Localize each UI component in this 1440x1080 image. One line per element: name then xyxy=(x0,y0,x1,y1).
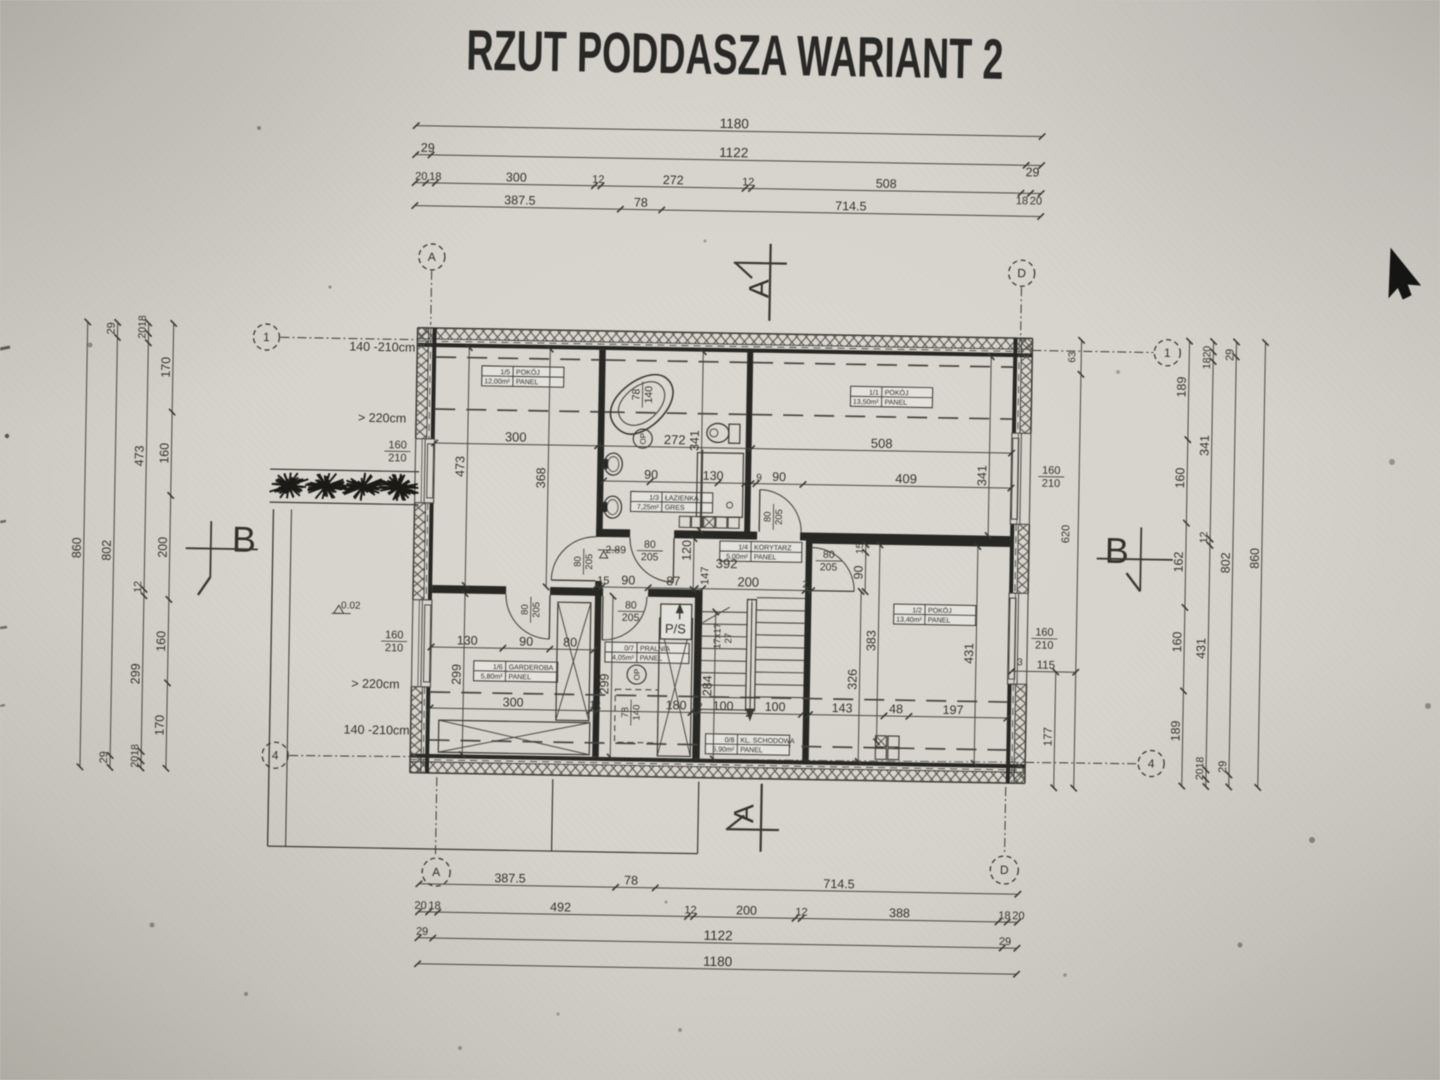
svg-text:1122: 1122 xyxy=(703,928,732,944)
svg-text:78: 78 xyxy=(620,707,631,718)
svg-text:387.5: 387.5 xyxy=(494,871,526,886)
svg-text:431: 431 xyxy=(962,643,976,664)
svg-text:160: 160 xyxy=(1170,631,1184,652)
svg-text:12: 12 xyxy=(1198,531,1210,543)
svg-text:1/4: 1/4 xyxy=(738,544,748,551)
svg-text:1/6: 1/6 xyxy=(493,664,503,671)
svg-text:130: 130 xyxy=(703,469,724,483)
svg-text:29: 29 xyxy=(416,926,428,938)
svg-text:18: 18 xyxy=(1016,195,1028,207)
svg-text:200: 200 xyxy=(737,574,759,589)
svg-text:78: 78 xyxy=(624,873,638,887)
svg-text:714.5: 714.5 xyxy=(835,199,867,214)
svg-text:13,50m²: 13,50m² xyxy=(853,399,879,406)
svg-text:272: 272 xyxy=(663,173,684,187)
svg-text:20: 20 xyxy=(414,900,426,912)
svg-text:80: 80 xyxy=(644,539,656,551)
svg-text:180: 180 xyxy=(666,698,687,712)
svg-text:802: 802 xyxy=(1218,552,1232,573)
svg-text:189: 189 xyxy=(1175,376,1189,397)
svg-text:9: 9 xyxy=(756,473,762,484)
svg-text:80: 80 xyxy=(625,599,637,611)
svg-text:80: 80 xyxy=(762,511,773,522)
svg-text:A: A xyxy=(728,804,759,824)
svg-text:299: 299 xyxy=(128,663,142,684)
svg-text:1820: 1820 xyxy=(1201,346,1213,370)
svg-text:1/1: 1/1 xyxy=(869,390,879,397)
svg-text:100: 100 xyxy=(713,699,734,713)
svg-text:78: 78 xyxy=(630,388,642,400)
svg-text:4,05m²: 4,05m² xyxy=(612,655,635,662)
svg-text:160: 160 xyxy=(157,443,171,464)
svg-text:205: 205 xyxy=(820,561,838,573)
svg-text:2018: 2018 xyxy=(1194,756,1206,780)
svg-text:B: B xyxy=(232,518,257,559)
svg-text:140 -210cm: 140 -210cm xyxy=(349,340,415,355)
svg-text:299: 299 xyxy=(449,664,463,685)
svg-text:1180: 1180 xyxy=(703,954,732,970)
svg-text:210: 210 xyxy=(388,452,407,464)
svg-text:0/8: 0/8 xyxy=(725,737,735,744)
svg-text:RZUT PODDASZA WARIANT 2: RZUT PODDASZA WARIANT 2 xyxy=(466,19,1004,92)
svg-text:12: 12 xyxy=(132,581,144,593)
svg-text:29: 29 xyxy=(98,751,110,763)
svg-text:OP: OP xyxy=(633,669,642,681)
svg-text:508: 508 xyxy=(876,177,897,191)
svg-text:PANEL: PANEL xyxy=(740,747,763,754)
svg-text:90: 90 xyxy=(772,470,786,484)
svg-text:7,25m²: 7,25m² xyxy=(637,504,660,511)
svg-text:12: 12 xyxy=(691,702,703,713)
svg-text:160: 160 xyxy=(388,439,407,451)
svg-text:210: 210 xyxy=(1035,640,1054,652)
svg-text:210: 210 xyxy=(385,642,404,654)
svg-text:387.5: 387.5 xyxy=(504,193,536,208)
svg-text:15: 15 xyxy=(597,575,609,587)
svg-text:140: 140 xyxy=(631,705,642,721)
svg-text:29: 29 xyxy=(999,936,1011,948)
svg-text:29: 29 xyxy=(1217,761,1229,773)
svg-text:189: 189 xyxy=(1169,720,1183,741)
svg-text:12: 12 xyxy=(795,906,807,918)
svg-text:PANEL: PANEL xyxy=(885,399,908,406)
svg-text:29: 29 xyxy=(1025,165,1039,179)
svg-text:409: 409 xyxy=(895,471,917,486)
svg-text:18: 18 xyxy=(428,900,440,912)
svg-text:OP: OP xyxy=(639,433,648,445)
svg-text:GRES: GRES xyxy=(665,505,685,512)
svg-text:860: 860 xyxy=(1248,548,1262,569)
svg-text:205: 205 xyxy=(641,551,659,563)
svg-text:12: 12 xyxy=(589,700,601,711)
svg-text:5,90m²: 5,90m² xyxy=(712,746,735,753)
svg-text:48: 48 xyxy=(889,702,903,716)
svg-text:383: 383 xyxy=(864,630,878,651)
svg-text:205: 205 xyxy=(531,602,542,618)
svg-text:508: 508 xyxy=(871,436,893,451)
svg-text:90: 90 xyxy=(851,565,865,579)
svg-text:160: 160 xyxy=(1035,627,1054,639)
svg-text:143: 143 xyxy=(832,701,853,715)
svg-text:2018: 2018 xyxy=(129,744,141,768)
svg-text:205: 205 xyxy=(584,554,595,570)
svg-text:15: 15 xyxy=(855,542,866,554)
svg-text:4: 4 xyxy=(272,748,279,762)
svg-text:197: 197 xyxy=(943,703,964,717)
svg-text:12: 12 xyxy=(592,174,604,186)
svg-text:5,80m²: 5,80m² xyxy=(481,673,504,680)
svg-text:388: 388 xyxy=(889,906,910,920)
svg-text:PANEL: PANEL xyxy=(516,379,539,386)
svg-text:1: 1 xyxy=(1164,346,1171,360)
svg-text:140 -210cm: 140 -210cm xyxy=(344,722,410,737)
svg-text:A: A xyxy=(428,250,436,264)
svg-text:20: 20 xyxy=(415,171,427,183)
svg-text:160: 160 xyxy=(385,629,404,641)
svg-text:78: 78 xyxy=(634,195,648,209)
svg-text:P/S: P/S xyxy=(665,621,687,636)
svg-text:1/2: 1/2 xyxy=(912,607,922,614)
svg-text:714.5: 714.5 xyxy=(823,877,855,892)
svg-text:90: 90 xyxy=(519,635,533,649)
svg-text:162: 162 xyxy=(1172,551,1186,572)
svg-text:200: 200 xyxy=(156,537,170,558)
svg-text:POKÓJ: POKÓJ xyxy=(928,606,952,615)
svg-text:341: 341 xyxy=(975,465,989,486)
svg-text:860: 860 xyxy=(70,537,84,558)
svg-text:2018: 2018 xyxy=(136,315,148,339)
svg-text:D: D xyxy=(1017,266,1026,280)
svg-text:130: 130 xyxy=(457,633,478,647)
svg-text:PANEL: PANEL xyxy=(508,674,531,681)
svg-text:115: 115 xyxy=(1037,660,1056,672)
svg-text:KL. SCHODOWA: KL. SCHODOWA xyxy=(740,737,795,745)
svg-text:17x17: 17x17 xyxy=(712,623,723,649)
svg-text:160: 160 xyxy=(1042,465,1061,477)
svg-text:90: 90 xyxy=(621,573,635,587)
svg-text:20: 20 xyxy=(1030,195,1042,207)
svg-text:27: 27 xyxy=(723,633,734,644)
svg-text:620: 620 xyxy=(1060,525,1072,544)
svg-text:300: 300 xyxy=(505,429,527,444)
svg-text:PANEL: PANEL xyxy=(754,554,777,561)
svg-text:29: 29 xyxy=(1224,349,1236,361)
svg-text:13,40m²: 13,40m² xyxy=(896,617,922,624)
svg-text:KORYTARZ: KORYTARZ xyxy=(754,545,792,553)
svg-text:272: 272 xyxy=(664,432,686,447)
svg-text:431: 431 xyxy=(1194,638,1208,659)
svg-text:12,00m²: 12,00m² xyxy=(484,378,510,385)
svg-text:A: A xyxy=(743,279,774,299)
svg-text:341: 341 xyxy=(1198,435,1212,456)
svg-text:200: 200 xyxy=(736,903,757,917)
svg-text:120: 120 xyxy=(680,540,694,561)
svg-text:160: 160 xyxy=(1173,467,1187,488)
svg-text:300: 300 xyxy=(506,170,527,184)
svg-text:160: 160 xyxy=(154,631,168,652)
svg-text:18: 18 xyxy=(998,910,1010,922)
svg-text:802: 802 xyxy=(100,540,114,561)
svg-text:1/3: 1/3 xyxy=(649,495,659,502)
svg-text:12: 12 xyxy=(742,176,754,188)
svg-text:87: 87 xyxy=(666,574,680,588)
svg-text:3: 3 xyxy=(1017,657,1023,668)
svg-text:140: 140 xyxy=(643,386,655,404)
svg-text:20: 20 xyxy=(1012,910,1024,922)
svg-text:POKÓJ: POKÓJ xyxy=(885,388,909,397)
svg-text:29: 29 xyxy=(421,141,435,155)
svg-text:1: 1 xyxy=(263,330,270,344)
svg-text:> 220cm: > 220cm xyxy=(351,677,400,692)
svg-text:4: 4 xyxy=(1148,757,1155,771)
svg-text:1122: 1122 xyxy=(719,145,748,161)
svg-text:63: 63 xyxy=(1067,351,1078,363)
svg-text:392: 392 xyxy=(716,556,738,571)
svg-text:2: 2 xyxy=(802,579,808,590)
svg-text:1/5: 1/5 xyxy=(500,369,510,376)
svg-text:100: 100 xyxy=(765,700,786,714)
svg-text:80: 80 xyxy=(563,635,577,649)
svg-text:B: B xyxy=(1105,530,1130,571)
svg-text:341: 341 xyxy=(688,430,702,451)
svg-text:ŁAZIENKA: ŁAZIENKA xyxy=(665,495,699,503)
svg-text:170: 170 xyxy=(153,715,167,736)
svg-text:205: 205 xyxy=(622,612,640,624)
svg-text:80: 80 xyxy=(823,549,835,561)
svg-text:90: 90 xyxy=(644,468,658,482)
svg-text:147: 147 xyxy=(699,566,711,585)
svg-text:492: 492 xyxy=(550,900,571,914)
svg-text:0/7: 0/7 xyxy=(624,645,634,652)
svg-text:368: 368 xyxy=(534,467,548,488)
svg-text:473: 473 xyxy=(453,456,467,477)
svg-text:POKÓJ: POKÓJ xyxy=(516,367,540,376)
svg-text:299: 299 xyxy=(597,673,611,694)
svg-text:GARDEROBA: GARDEROBA xyxy=(509,664,554,672)
svg-text:326: 326 xyxy=(845,669,859,690)
svg-text:PANEL: PANEL xyxy=(928,617,951,624)
svg-text:473: 473 xyxy=(132,445,146,466)
svg-text:0.02: 0.02 xyxy=(341,600,361,611)
svg-text:170: 170 xyxy=(159,357,173,378)
svg-text:300: 300 xyxy=(503,695,524,709)
svg-text:210: 210 xyxy=(1042,478,1061,490)
svg-text:D: D xyxy=(1000,863,1009,877)
svg-text:1180: 1180 xyxy=(720,116,749,132)
svg-text:A: A xyxy=(432,865,440,879)
svg-text:205: 205 xyxy=(774,509,785,525)
svg-text:284: 284 xyxy=(700,675,714,696)
svg-text:18: 18 xyxy=(429,171,441,183)
svg-text:177: 177 xyxy=(1042,727,1054,746)
svg-text:80: 80 xyxy=(573,556,584,567)
svg-text:12: 12 xyxy=(684,904,696,916)
svg-text:> 220cm: > 220cm xyxy=(358,411,407,426)
svg-text:80: 80 xyxy=(520,604,531,615)
svg-text:29: 29 xyxy=(105,322,117,334)
